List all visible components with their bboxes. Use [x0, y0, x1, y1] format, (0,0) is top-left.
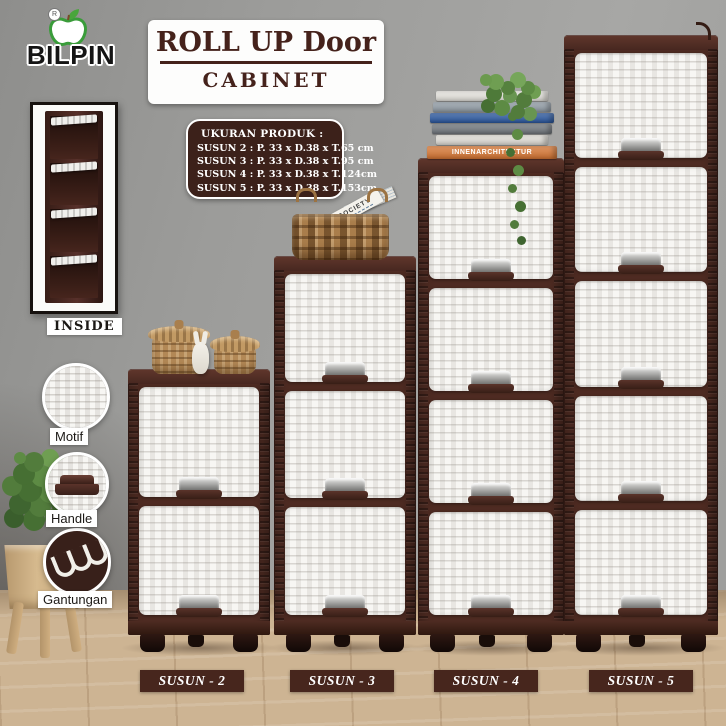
drawer	[564, 278, 718, 392]
cabinet-side-rib	[406, 270, 415, 621]
handle-recess	[621, 252, 661, 265]
gantungan-feature-circle	[43, 528, 111, 596]
plant-stand-leg	[40, 606, 50, 658]
drawer-front	[429, 288, 553, 391]
handle-recess	[621, 138, 661, 151]
hooks-closeup	[46, 531, 108, 593]
drawer-stack	[128, 384, 270, 621]
drawer-handle	[322, 478, 368, 500]
cabinet-susun-4	[418, 158, 564, 635]
cabinet-lineup: SUSUN - 2SUSUN - 3SUSUN - 4SUSUN - 5	[0, 0, 726, 726]
cabinet-foot	[576, 634, 601, 652]
cabinet-side-rib	[565, 49, 574, 621]
handle-recess	[471, 371, 511, 384]
rattan-motif-texture	[45, 366, 107, 428]
handle-recess	[325, 595, 365, 608]
book-spine	[436, 135, 548, 145]
book-spine	[433, 102, 551, 112]
cabinet-foot	[379, 634, 404, 652]
handle-recess	[179, 595, 219, 608]
cabinet-back-foot	[479, 635, 495, 647]
cabinet-side-rib	[275, 270, 284, 621]
handle-recess	[471, 259, 511, 272]
woven-basket	[292, 214, 389, 260]
cabinet-name-label: SUSUN - 4	[434, 670, 538, 692]
cabinet-base-rail	[564, 621, 718, 635]
drawer-front	[285, 274, 405, 382]
drawer-handle	[322, 595, 368, 617]
gantungan-label: Gantungan	[38, 591, 112, 608]
drawer	[418, 509, 564, 621]
book-spine	[430, 113, 554, 123]
potted-plant-foliage	[14, 452, 26, 464]
drawer	[564, 50, 718, 164]
ivy-trailing-vine	[508, 112, 517, 121]
drawer-front	[575, 281, 707, 386]
book-spine	[432, 124, 552, 134]
cabinet-top-rail	[418, 158, 564, 173]
cabinet-foot	[286, 634, 311, 652]
drawer-handle	[618, 595, 664, 617]
cabinet-foot	[681, 634, 706, 652]
drawer	[418, 173, 564, 285]
drawer-handle	[468, 483, 514, 505]
handle-lip	[322, 491, 368, 500]
drawer-front	[575, 396, 707, 501]
handle-lip	[618, 380, 664, 389]
drawer-front	[285, 391, 405, 499]
drawer	[274, 388, 416, 505]
cabinet-back-foot	[629, 635, 645, 647]
cabinet-susun-5	[564, 35, 718, 635]
handle-lip	[618, 151, 664, 160]
cabinet-susun-3	[274, 256, 416, 635]
motif-label: Motif	[50, 428, 88, 445]
cabinet-base-rail	[274, 621, 416, 635]
drawer-front	[429, 176, 553, 279]
drawer-stack	[564, 50, 718, 621]
drawer-handle	[468, 595, 514, 617]
cabinet-susun-2	[128, 369, 270, 635]
drawer	[418, 397, 564, 509]
cabinet-foot	[233, 634, 258, 652]
handle-recess	[621, 367, 661, 380]
drawer-front	[429, 512, 553, 615]
susun3-top-decor: SOCIETY	[292, 196, 392, 262]
handle-lip	[176, 490, 222, 499]
motif-feature-circle	[42, 363, 110, 431]
drawer-handle	[618, 138, 664, 160]
drawer-stack	[418, 173, 564, 621]
cabinet-side-rib	[419, 172, 428, 621]
drawer	[564, 393, 718, 507]
drawer	[274, 271, 416, 388]
basket-handle	[296, 188, 317, 202]
handle-recess	[179, 477, 219, 490]
drawer-front	[139, 387, 259, 497]
handle-lip	[468, 496, 514, 505]
cabinet-base-rail	[418, 621, 564, 635]
drawer-front	[575, 510, 707, 615]
cabinet-name-label: SUSUN - 5	[589, 670, 693, 692]
handle-feature-circle	[45, 452, 109, 516]
drawer-handle	[176, 477, 222, 499]
wicker-basket	[214, 346, 256, 374]
handle-lip	[618, 608, 664, 617]
handle-lip	[618, 494, 664, 503]
handle-label: Handle	[46, 510, 97, 527]
drawer	[564, 507, 718, 621]
cabinet-back-foot	[334, 635, 350, 647]
handle-lip	[322, 375, 368, 384]
cabinet-back-foot	[188, 635, 204, 647]
handle-lip	[468, 384, 514, 393]
ivy-plant	[480, 74, 492, 86]
cabinet-foot	[527, 634, 552, 652]
cabinet-top-rail	[564, 35, 718, 50]
book-spine: INNENARCHITEKTUR	[427, 146, 557, 159]
handle-lip	[176, 608, 222, 617]
drawer	[418, 285, 564, 397]
book-title: INNENARCHITEKTUR	[452, 149, 532, 156]
cabinet-side-rib	[708, 49, 717, 621]
poster: R BILPIN ROLL UP Door CABINET UKURAN PRO…	[0, 0, 726, 726]
cabinet-side-rib	[129, 383, 138, 621]
drawer-front	[575, 53, 707, 158]
gantungan-hook	[696, 22, 711, 40]
drawer-handle	[618, 252, 664, 274]
drawer-handle	[322, 362, 368, 384]
cabinet-foot	[140, 634, 165, 652]
cabinet-name-label: SUSUN - 3	[290, 670, 394, 692]
drawer-stack	[274, 271, 416, 621]
drawer-handle	[468, 259, 514, 281]
cabinet-side-rib	[260, 383, 269, 621]
drawer-handle	[468, 371, 514, 393]
handle-recess	[621, 595, 661, 608]
rabbit-figurine	[192, 342, 209, 374]
drawer	[564, 164, 718, 278]
drawer-front	[139, 506, 259, 616]
handle-recess	[325, 362, 365, 375]
handle-lip	[468, 608, 514, 617]
cabinet-name-label: SUSUN - 2	[140, 670, 244, 692]
cabinet-foot	[430, 634, 455, 652]
handle-lip	[322, 608, 368, 617]
drawer	[128, 503, 270, 622]
drawer-front	[429, 400, 553, 503]
handle-lip	[618, 265, 664, 274]
drawer-handle	[618, 481, 664, 503]
drawer-front	[285, 507, 405, 615]
drawer	[128, 384, 270, 503]
handle-recess	[471, 483, 511, 496]
book-spine	[436, 91, 548, 101]
handle-recess	[325, 478, 365, 491]
cabinet-base-rail	[128, 621, 270, 635]
drawer-front	[575, 167, 707, 272]
drawer-handle	[618, 367, 664, 389]
book-stack: INNENARCHITEKTUR	[426, 90, 558, 159]
handle-recess	[471, 595, 511, 608]
basket-handle	[367, 188, 388, 202]
susun2-top-decor	[150, 326, 262, 372]
susun4-top-decor: INNENARCHITEKTUR	[426, 90, 558, 160]
drawer-handle	[176, 595, 222, 617]
drawer	[274, 504, 416, 621]
handle-recess	[621, 481, 661, 494]
handle-lip	[468, 272, 514, 281]
cabinet-side-rib	[554, 172, 563, 621]
handle-closeup	[55, 475, 99, 495]
